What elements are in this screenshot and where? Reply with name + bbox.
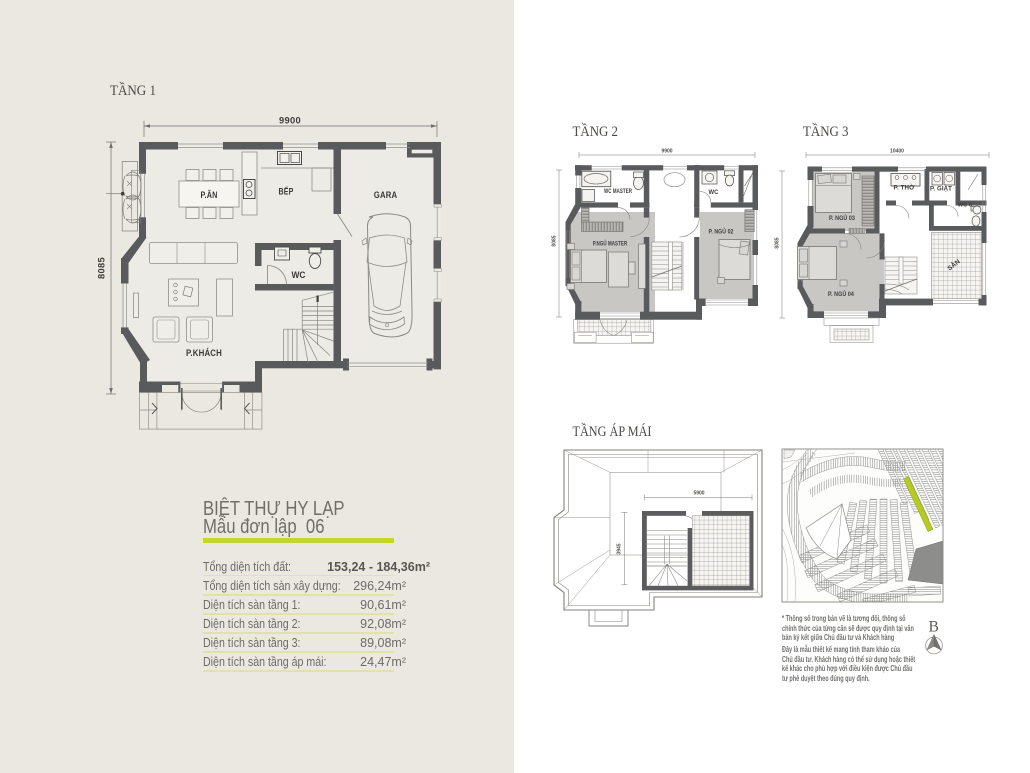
svg-text:9900: 9900 [661,149,672,155]
svg-text:TẦNG ÁP MÁI: TẦNG ÁP MÁI [573,423,652,440]
svg-text:BẾP: BẾP [279,187,294,197]
svg-text:B: B [929,619,939,636]
svg-text:P. NGỦ 03: P. NGỦ 03 [829,213,855,222]
svg-text:GARA: GARA [374,190,398,200]
svg-text:P.KHÁCH: P.KHÁCH [186,348,222,358]
svg-text:P.ĂN: P.ĂN [201,190,218,200]
svg-text:8085: 8085 [775,237,781,248]
svg-text:WC: WC [709,189,719,196]
svg-text:5900: 5900 [693,491,704,497]
svg-text:P. GIẶT: P. GIẶT [930,184,952,193]
svg-text:WC: WC [292,270,306,280]
svg-text:WC 0: WC 0 [958,203,972,209]
svg-text:P.NGỦ MASTER: P.NGỦ MASTER [593,239,628,248]
svg-text:P. NGỦ 02: P. NGỦ 02 [709,227,734,236]
svg-text:P. THỜ: P. THỜ [894,183,915,192]
svg-text:3945: 3945 [617,543,623,554]
svg-text:10400: 10400 [890,149,904,155]
svg-text:P. NGỦ 04: P. NGỦ 04 [828,289,854,298]
svg-text:TẦNG 1: TẦNG 1 [110,82,156,99]
svg-text:TẦNG 3: TẦNG 3 [803,123,849,140]
svg-text:TẦNG 2: TẦNG 2 [573,123,619,140]
svg-text:9900: 9900 [279,115,301,125]
svg-text:8085: 8085 [552,235,558,246]
svg-text:8085: 8085 [97,257,107,279]
svg-text:WC MASTER: WC MASTER [604,188,632,195]
